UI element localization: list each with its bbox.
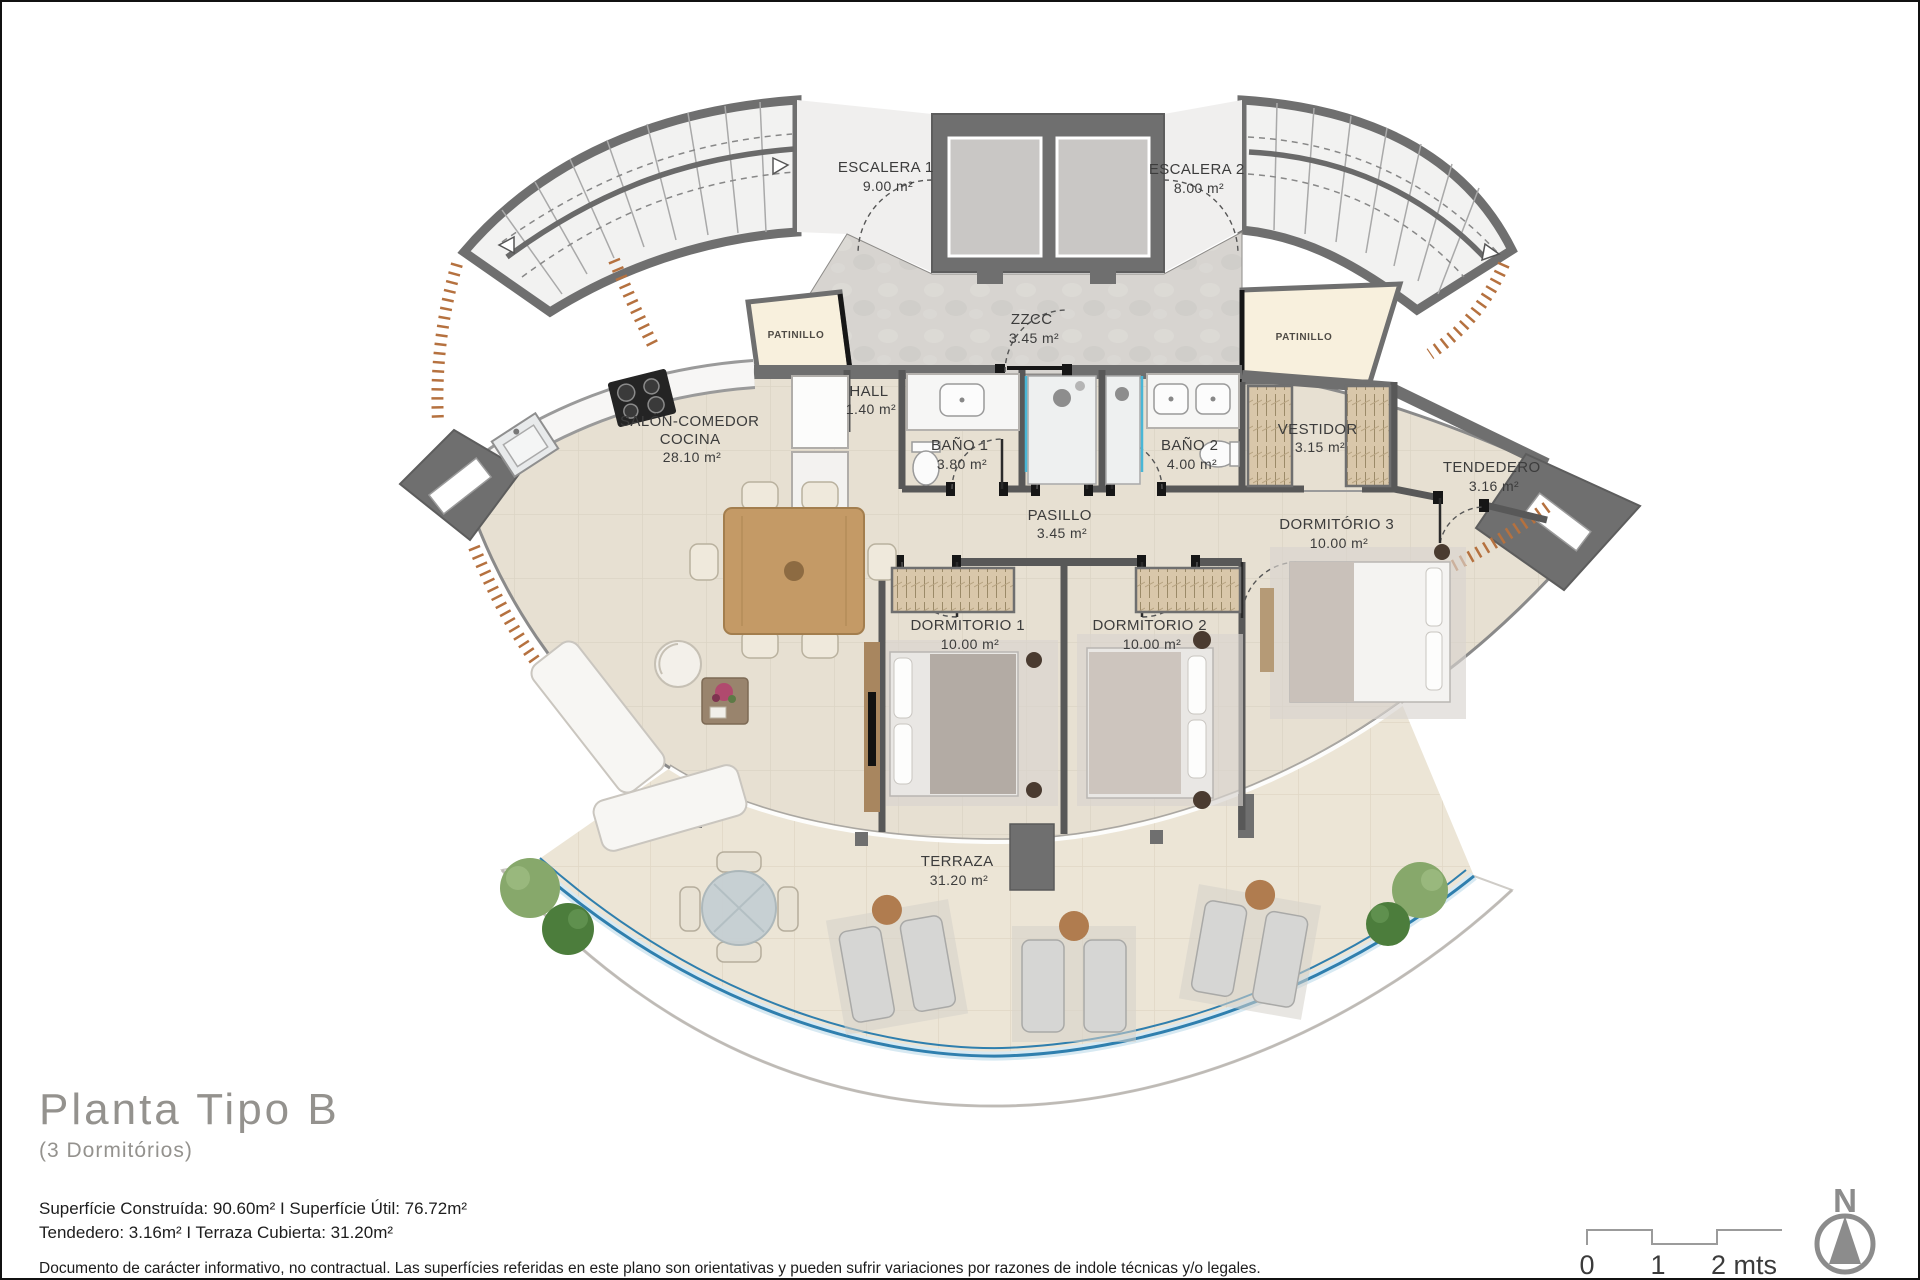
- area-summary-line-1: Superfície Construída: 90.60m² I Superfí…: [39, 1199, 467, 1218]
- bedroom-3-bed: [1260, 544, 1466, 719]
- elevator-core: [932, 114, 1164, 284]
- bedroom-2-bed: [1077, 631, 1243, 809]
- compass-north-label: N: [1833, 1182, 1857, 1219]
- lounge-armchair: [655, 641, 701, 687]
- terrace-lounger-group-2: [1012, 911, 1136, 1042]
- plan-title: Planta Tipo B: [39, 1085, 340, 1134]
- coffee-table: [702, 678, 748, 724]
- tv-panel: [864, 642, 880, 812]
- room-label-patinillo-left: PATINILLO: [768, 330, 825, 341]
- scale-label-0: 0: [1579, 1250, 1594, 1278]
- floor-plan-canvas: ESCALERA 1 9.00 m² ESCALERA 2 8.00 m² ZZ…: [2, 2, 1918, 1278]
- terrace-center-pillar: [1010, 824, 1054, 890]
- bedroom-1-bed: [886, 640, 1058, 806]
- area-summary-line-2: Tendedero: 3.16m² I Terraza Cubierta: 31…: [39, 1223, 393, 1242]
- elevator-cab-1: [949, 138, 1041, 256]
- stair-wing-escalera-1: [464, 100, 797, 312]
- north-compass-icon: N: [1817, 1182, 1873, 1272]
- elevator-cab-2: [1057, 138, 1149, 256]
- scale-label-1: 1: [1650, 1250, 1665, 1278]
- scale-label-2: 2 mts: [1711, 1250, 1777, 1278]
- floor-plan-page: ESCALERA 1 9.00 m² ESCALERA 2 8.00 m² ZZ…: [0, 0, 1920, 1280]
- scale-bar: 0 1 2 mts: [1579, 1230, 1782, 1278]
- shower-room: [1026, 376, 1096, 484]
- plan-subtitle: (3 Dormitórios): [39, 1139, 193, 1162]
- stair-wing-escalera-2: [1242, 100, 1512, 310]
- disclaimer-text: Documento de carácter informativo, no co…: [39, 1260, 1261, 1277]
- room-label-patinillo-right: PATINILLO: [1276, 332, 1333, 343]
